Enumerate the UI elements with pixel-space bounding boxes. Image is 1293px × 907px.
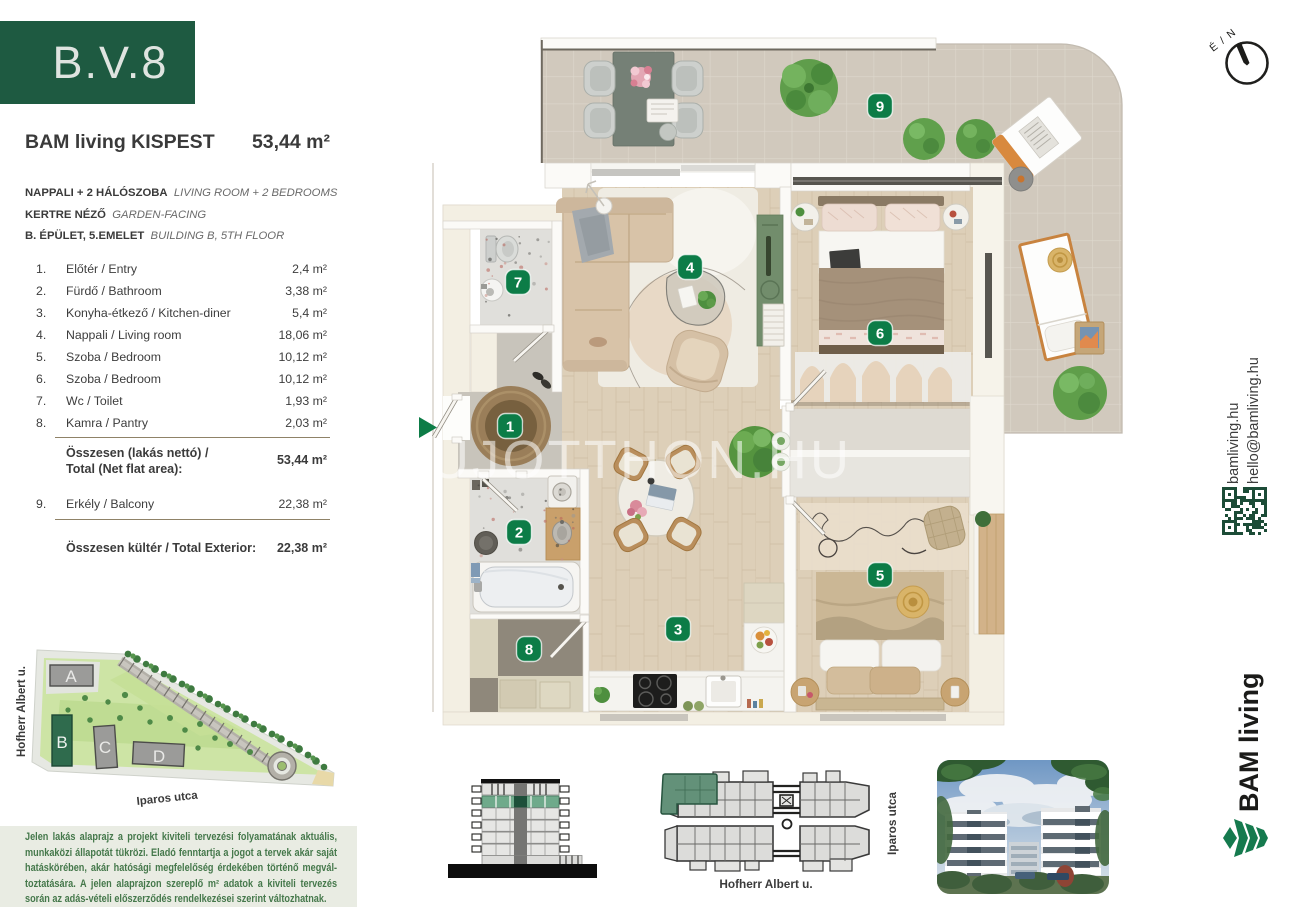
svg-text:6: 6	[876, 326, 884, 343]
svg-text:8: 8	[525, 642, 533, 659]
svg-text:3: 3	[674, 622, 682, 639]
svg-text:9: 9	[876, 99, 884, 116]
svg-text:Iparos utca: Iparos utca	[885, 792, 899, 855]
svg-text:2: 2	[515, 525, 523, 542]
svg-text:UJOTTHON.HU: UJOTTHON.HU	[430, 430, 852, 490]
svg-text:5: 5	[876, 568, 884, 585]
svg-text:4: 4	[686, 260, 695, 277]
svg-text:7: 7	[514, 275, 522, 292]
svg-text:Hofherr Albert u.: Hofherr Albert u.	[719, 877, 812, 891]
